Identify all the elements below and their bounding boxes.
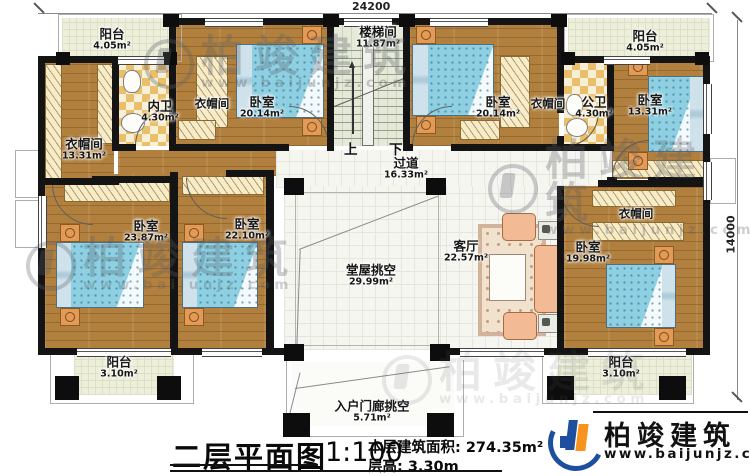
wall xyxy=(598,180,710,187)
bed xyxy=(606,264,676,328)
nightstand xyxy=(654,246,674,264)
wardrobe xyxy=(592,190,676,207)
floor-height-text: 层高: 3.30m xyxy=(368,455,459,476)
shoe-cabinet xyxy=(178,120,216,140)
room-label-bedroom-top-right: 卧室20.14m² xyxy=(476,96,520,121)
column xyxy=(695,52,709,65)
window xyxy=(430,18,488,27)
wall xyxy=(112,144,136,151)
wall xyxy=(112,56,119,151)
wall xyxy=(169,144,289,151)
wall xyxy=(92,176,172,183)
window xyxy=(703,162,712,200)
room-label-closet-tl: 衣帽间 xyxy=(195,98,230,111)
logo-divider xyxy=(593,411,748,413)
window xyxy=(205,18,263,27)
column xyxy=(561,52,575,65)
room-label-stairwell: 楼梯间11.87m² xyxy=(356,26,400,51)
title-underline xyxy=(170,464,318,466)
room-label-bedroom-right-top: 卧室13.31m² xyxy=(628,94,672,119)
column xyxy=(430,344,450,361)
room-label-closet-tr: 衣帽间 xyxy=(531,98,566,111)
room-label-cloak-left: 衣帽间13.31m² xyxy=(62,138,106,163)
bed xyxy=(56,242,144,308)
room-label-balcony-top-left: 阳台4.05m² xyxy=(93,28,131,53)
stairs-direction-line xyxy=(352,68,354,134)
room-label-porch-void: 入户门廊挑空5.71m² xyxy=(334,400,409,425)
toilet xyxy=(123,70,141,93)
column xyxy=(659,376,686,400)
wall xyxy=(451,144,564,151)
nightstand xyxy=(60,224,80,242)
window xyxy=(703,84,712,134)
room-label-corridor: 过道16.33m² xyxy=(384,157,428,182)
room-label-bedroom-mid-left-2: 卧室22.10m² xyxy=(225,218,269,243)
dimension-top-label: 24200 xyxy=(352,0,390,13)
wall xyxy=(327,18,334,151)
nightstand xyxy=(302,26,322,44)
wall xyxy=(403,144,413,151)
dimension-tick xyxy=(706,2,717,13)
room-label-closet-right: 衣帽间 xyxy=(619,208,654,221)
window xyxy=(38,196,47,248)
column xyxy=(56,52,70,65)
wardrobe xyxy=(45,64,62,182)
dimension-line-top xyxy=(38,13,712,14)
column xyxy=(55,376,79,400)
nightstand xyxy=(416,26,436,44)
column xyxy=(157,376,181,400)
title-underline-long xyxy=(170,470,502,472)
dimension-right-label: 14000 xyxy=(725,215,738,253)
stairs-stringer xyxy=(362,46,374,146)
room-label-bedroom-top-left: 卧室20.14m² xyxy=(240,96,284,121)
shoe-cabinet xyxy=(460,120,500,140)
stairs-direction-arrow xyxy=(349,61,355,68)
column xyxy=(427,413,454,437)
nightstand xyxy=(184,308,204,326)
column xyxy=(547,376,574,400)
column xyxy=(551,14,567,27)
wardrobe-closet-tl xyxy=(196,56,228,128)
wall xyxy=(170,172,178,355)
wall xyxy=(561,144,614,151)
wall xyxy=(403,18,410,151)
wardrobe xyxy=(592,222,684,241)
balcony-door xyxy=(604,56,650,65)
balcony-door xyxy=(118,56,164,65)
column xyxy=(399,14,415,27)
column xyxy=(163,14,179,27)
room-label-living: 客厅22.57m² xyxy=(444,240,488,265)
room-label-balcony-bottom-right: 阳台3.10m² xyxy=(602,356,640,381)
room-label-balcony-top-right: 阳台4.05m² xyxy=(626,30,664,55)
room-label-bath-inner: 内卫4.30m² xyxy=(141,100,179,125)
window xyxy=(202,348,262,357)
dimension-line-right xyxy=(737,20,738,400)
room-label-hall-void: 堂屋挑空29.99m² xyxy=(346,264,396,289)
floor-area-text: 本层建筑面积: 274.35m² xyxy=(368,436,543,457)
window-sill xyxy=(710,158,736,204)
armchair xyxy=(502,213,536,241)
column xyxy=(426,178,446,195)
dimension-tick xyxy=(33,2,44,13)
side-table xyxy=(538,221,558,240)
room-label-bedroom-mid-left-1: 卧室23.87m² xyxy=(124,220,168,245)
column xyxy=(284,178,304,195)
coffee-table xyxy=(489,254,526,301)
column xyxy=(163,52,177,65)
wall xyxy=(557,186,564,355)
nightstand xyxy=(654,328,674,346)
armchair xyxy=(503,312,537,340)
room-label-bath-public: 公卫4.30m² xyxy=(575,96,613,121)
room-label-bedroom-right-bottom: 卧室19.98m² xyxy=(566,241,610,266)
wall xyxy=(266,170,274,355)
stairs-up-label: 上 xyxy=(344,138,358,158)
column xyxy=(284,344,304,361)
column xyxy=(323,14,339,27)
wall xyxy=(169,18,176,151)
stairs-down-label: 下 xyxy=(389,138,403,158)
window xyxy=(460,348,544,357)
nightstand xyxy=(60,308,80,326)
bed xyxy=(182,242,258,308)
nightstand xyxy=(184,224,204,242)
side-table xyxy=(538,314,558,333)
room-label-balcony-bottom-left: 阳台3.10m² xyxy=(100,356,138,381)
floor-plan-canvas: 24200 14000 xyxy=(0,0,750,476)
company-url: www.baijunjz.com xyxy=(604,446,750,462)
